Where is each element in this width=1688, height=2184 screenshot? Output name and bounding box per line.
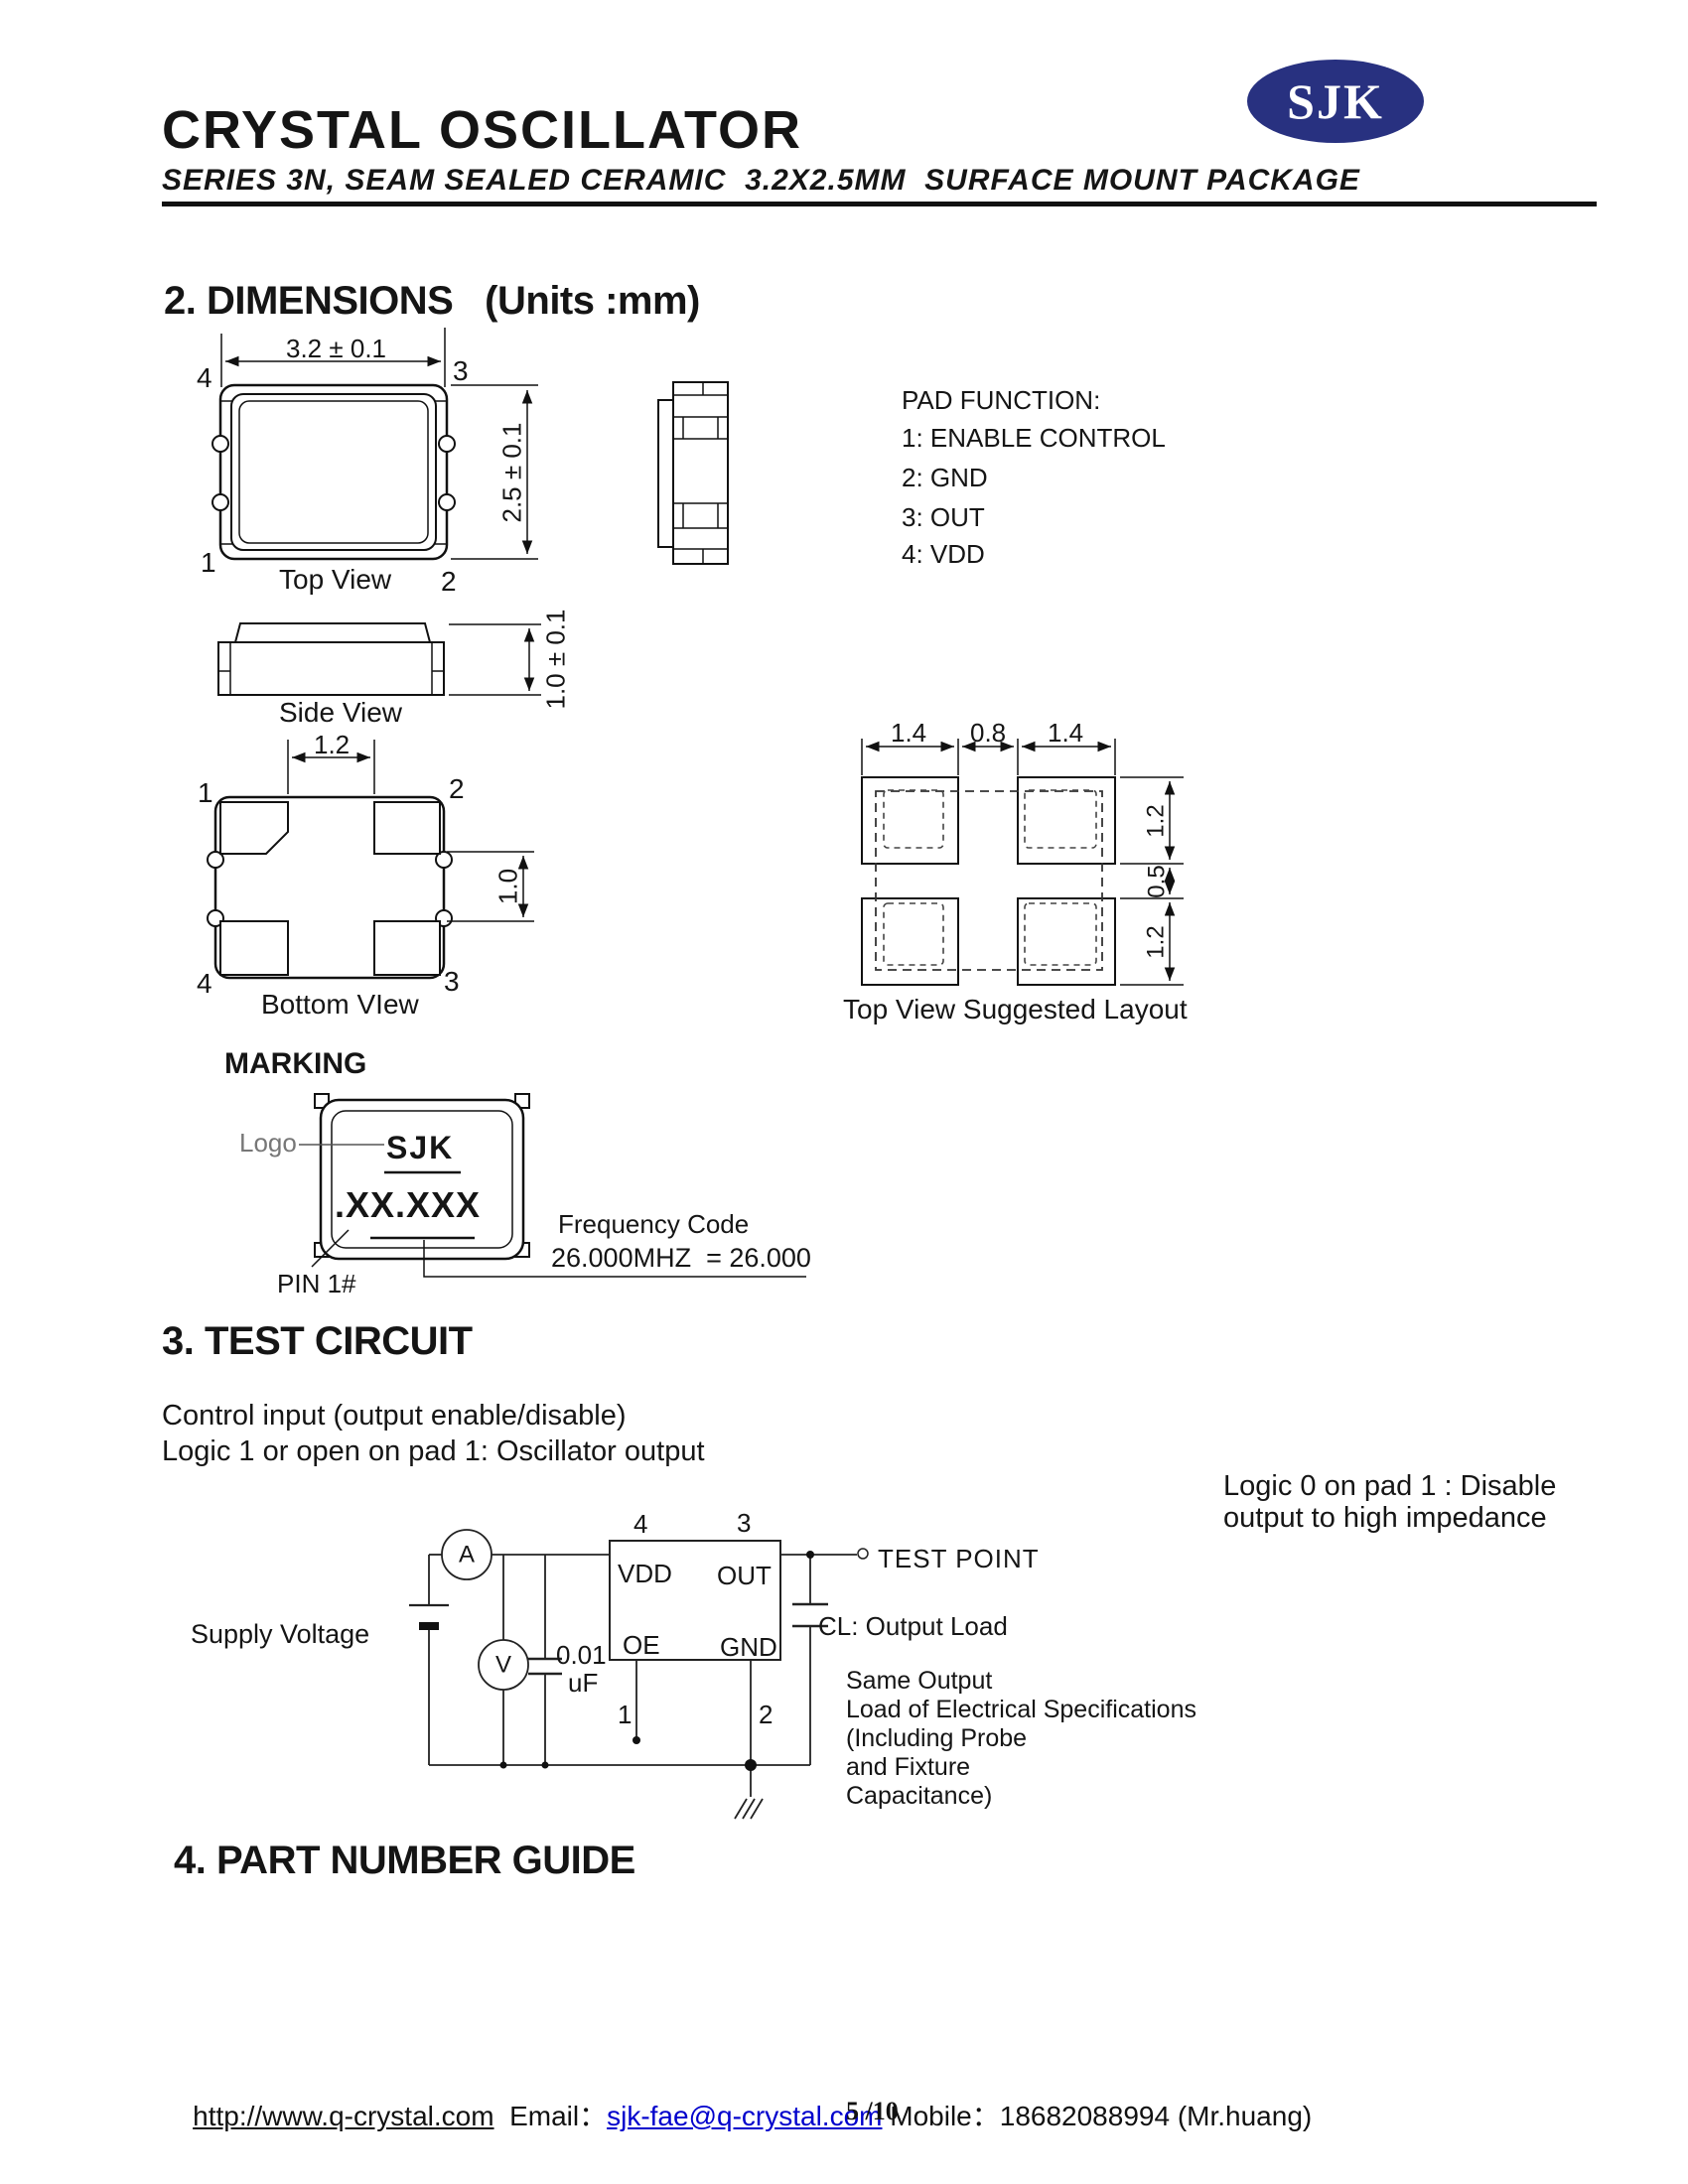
footer-email-link[interactable]: sjk-fae@q-crystal.com — [607, 2101, 882, 2131]
bottom-view-drawing — [189, 730, 556, 993]
header-divider — [162, 202, 1597, 206]
pad-function-item-1: 1: ENABLE CONTROL — [902, 425, 1166, 452]
pad-function-item-4: 4: VDD — [902, 541, 985, 568]
topview-pin3-label: 3 — [453, 356, 469, 385]
load-note-line-5: Capacitance) — [846, 1783, 992, 1809]
layout-dim-r1: 1.2 — [1143, 804, 1168, 837]
bottomview-pin4-label: 4 — [197, 969, 212, 998]
ammeter-label: A — [459, 1542, 475, 1567]
bottomview-pin3-label: 3 — [444, 967, 460, 996]
topview-pin4-label: 4 — [197, 363, 212, 392]
circuit-out-label: OUT — [717, 1563, 772, 1589]
circuit-vdd-label: VDD — [618, 1561, 672, 1587]
test-circuit-note-2: Logic 1 or open on pad 1: Oscillator out… — [162, 1436, 705, 1466]
marking-freq-example: 26.000MHZ = 26.000 — [551, 1244, 811, 1272]
layout-dim-right: 1.4 — [1048, 720, 1083, 747]
sideview-caption: Side View — [279, 698, 402, 727]
topview-pin1-label: 1 — [201, 548, 216, 577]
circuit-pin1-label: 1 — [618, 1702, 632, 1728]
marking-code-text: .XX.XXX — [335, 1186, 481, 1224]
circuit-gnd-label: GND — [720, 1634, 777, 1661]
layout-dim-r2: 0.5 — [1144, 865, 1169, 897]
supply-voltage-label: Supply Voltage — [191, 1620, 369, 1648]
load-note-line-2: Load of Electrical Specifications — [846, 1697, 1196, 1722]
test-circuit-note-1: Control input (output enable/disable) — [162, 1401, 627, 1431]
test-circuit-right-note-1: Logic 0 on pad 1 : Disable — [1223, 1471, 1556, 1501]
page-number: 5 /10 — [846, 2097, 899, 2126]
footer-mobile-value: 18682088994 (Mr.huang) — [1000, 2101, 1312, 2131]
footer-email-label: Email： — [494, 2101, 608, 2131]
page-subtitle: SERIES 3N, SEAM SEALED CERAMIC 3.2X2.5MM… — [162, 165, 1360, 197]
pad-function-item-2: 2: GND — [902, 465, 988, 491]
test-circuit-heading: 3. TEST CIRCUIT — [162, 1320, 473, 1362]
layout-dim-r3: 1.2 — [1143, 925, 1168, 958]
marking-logo-label: Logo — [239, 1130, 297, 1157]
load-note-line-4: and Fixture — [846, 1754, 970, 1780]
footer-mobile-label: Mobile： — [882, 2101, 999, 2131]
cap-value-label: 0.01 — [556, 1642, 607, 1669]
footer: http://www.q-crystal.com Email：sjk-fae@q… — [162, 2063, 1312, 2166]
bottomview-pin2-label: 2 — [449, 774, 465, 803]
topview-caption: Top View — [279, 565, 391, 594]
marking-freq-title: Frequency Code — [558, 1211, 749, 1238]
topview-height-dim: 2.5 ± 0.1 — [498, 422, 525, 522]
bottomview-right-dim: 1.0 — [494, 869, 521, 904]
marking-pin1-label: PIN 1# — [277, 1271, 356, 1297]
bottomview-pin1-label: 1 — [198, 778, 213, 807]
layout-dim-left: 1.4 — [891, 720, 926, 747]
datasheet-page: CRYSTAL OSCILLATOR SERIES 3N, SEAM SEALE… — [0, 0, 1688, 2184]
bottomview-caption: Bottom VIew — [261, 990, 419, 1019]
page-title: CRYSTAL OSCILLATOR — [162, 102, 802, 159]
sjk-logo-text: SJK — [1287, 72, 1384, 130]
dimensions-heading: 2. DIMENSIONS (Units :mm) — [164, 280, 700, 322]
layout-caption: Top View Suggested Layout — [843, 995, 1188, 1024]
circuit-pin4-label: 4 — [633, 1511, 647, 1538]
circuit-pin2-label: 2 — [759, 1702, 773, 1728]
test-point-label: TEST POINT — [878, 1546, 1040, 1572]
sjk-logo: SJK — [1247, 60, 1424, 143]
layout-dim-mid: 0.8 — [970, 720, 1006, 747]
circuit-oe-label: OE — [623, 1632, 660, 1659]
load-note-line-1: Same Output — [846, 1668, 992, 1694]
cap-unit-label: uF — [568, 1670, 598, 1697]
suggested-layout-drawing — [834, 713, 1201, 1003]
footer-url-link[interactable]: http://www.q-crystal.com — [193, 2101, 493, 2131]
sideview-height-dim: 1.0 ± 0.1 — [542, 609, 569, 709]
marking-heading: MARKING — [224, 1048, 366, 1080]
pad-function-title: PAD FUNCTION: — [902, 387, 1100, 414]
part-number-heading: 4. PART NUMBER GUIDE — [174, 1840, 635, 1881]
test-circuit-right-note-2: output to high impedance — [1223, 1503, 1547, 1533]
marking-logo-text: SJK — [386, 1132, 454, 1165]
bottomview-top-dim: 1.2 — [314, 732, 350, 758]
voltmeter-label: V — [495, 1652, 511, 1677]
topview-width-dim: 3.2 ± 0.1 — [286, 336, 386, 362]
cl-output-load-label: CL: Output Load — [818, 1613, 1008, 1640]
topview-pin2-label: 2 — [441, 567, 457, 596]
circuit-pin3-label: 3 — [737, 1510, 751, 1537]
load-note-line-3: (Including Probe — [846, 1725, 1027, 1751]
pad-function-item-3: 3: OUT — [902, 504, 985, 531]
